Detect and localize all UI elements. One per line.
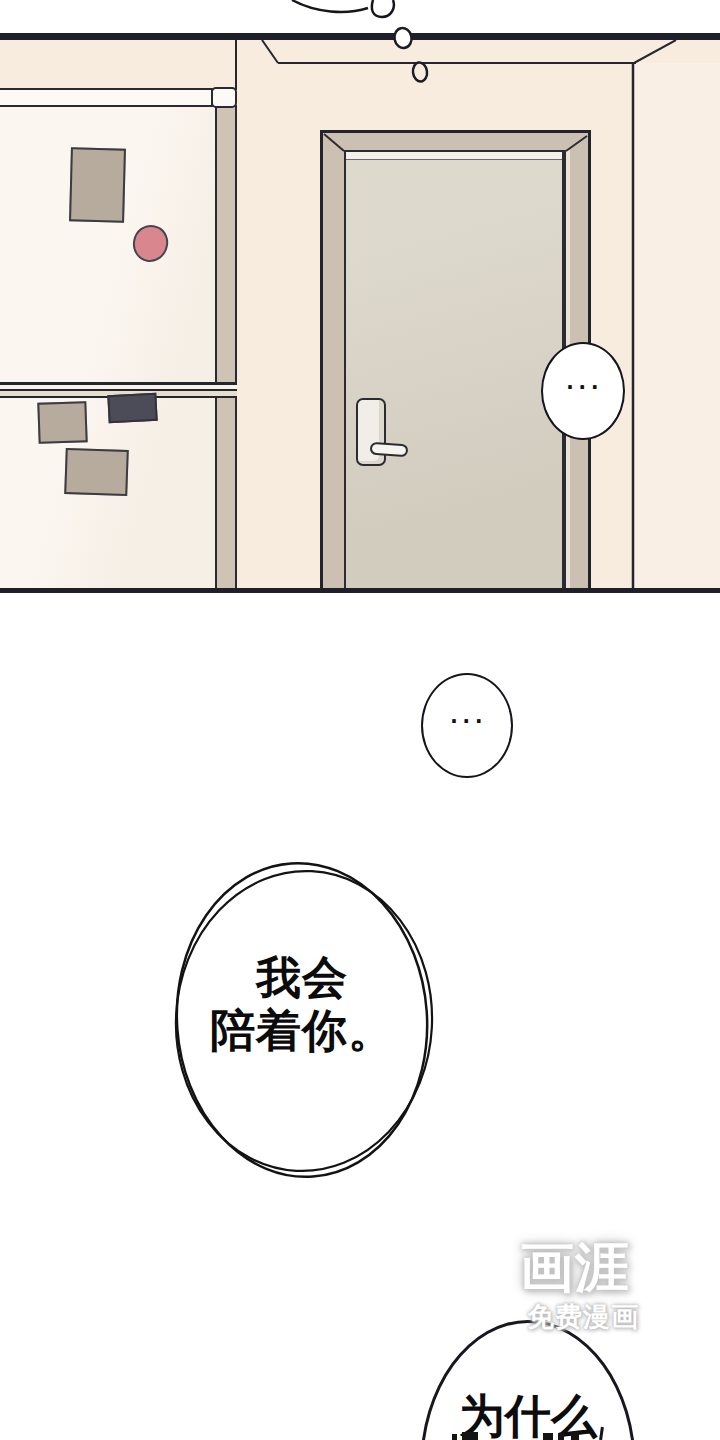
speech-bubble-tail-curve bbox=[292, 0, 368, 12]
ellipsis-bubble-mid: ··· bbox=[421, 673, 513, 778]
door-frame-miter-lines bbox=[323, 133, 588, 588]
ellipsis-bubble-door: ··· bbox=[541, 342, 625, 440]
speech-text-main: 我会 陪着你。 bbox=[172, 952, 432, 1057]
miter-line-left bbox=[324, 134, 344, 151]
door-lock-plate bbox=[356, 398, 386, 466]
clipped-glyph-fragment bbox=[462, 1432, 478, 1440]
refrigerator-top-edge bbox=[0, 88, 213, 107]
fridge-note-paper-dark bbox=[107, 393, 157, 424]
right-wall-face bbox=[634, 63, 720, 588]
door-lock bbox=[356, 398, 431, 473]
watermark: 画涯 免费漫画 bbox=[520, 1238, 639, 1335]
speech-text-line: 我会 bbox=[172, 952, 432, 1005]
watermark-logo: 画涯 bbox=[520, 1238, 639, 1297]
clipped-glyph-fragment bbox=[571, 1432, 579, 1440]
ellipsis-text: ··· bbox=[563, 375, 604, 400]
refrigerator-top-corner-cap bbox=[211, 87, 237, 108]
miter-line-right bbox=[566, 136, 587, 151]
ceiling-diagonal-left bbox=[262, 40, 278, 63]
speech-text-bottom: 为什么 bbox=[428, 1386, 628, 1440]
ceiling-diagonal-right bbox=[634, 40, 676, 63]
clipped-glyph-fragment bbox=[452, 1434, 457, 1440]
watermark-tagline: 免费漫画 bbox=[520, 1299, 639, 1335]
speech-bubble-tail-hook bbox=[372, 0, 394, 17]
speech-text-line: 陪着你。 bbox=[172, 1005, 432, 1058]
ellipsis-text: ··· bbox=[447, 709, 488, 734]
refrigerator bbox=[0, 88, 237, 588]
door-handle-lever bbox=[370, 442, 409, 458]
refrigerator-side-panel bbox=[215, 105, 237, 588]
fridge-note-paper bbox=[69, 147, 126, 222]
fridge-note-paper bbox=[37, 401, 87, 444]
fridge-note-paper bbox=[64, 448, 129, 496]
clipped-glyph-fragment bbox=[558, 1433, 564, 1440]
comic-page: ··· ··· 我会 陪着你。 为什么 画涯 免费漫画 bbox=[0, 0, 720, 1440]
scene-panel bbox=[0, 33, 720, 593]
clipped-glyph-fragment bbox=[543, 1433, 553, 1440]
